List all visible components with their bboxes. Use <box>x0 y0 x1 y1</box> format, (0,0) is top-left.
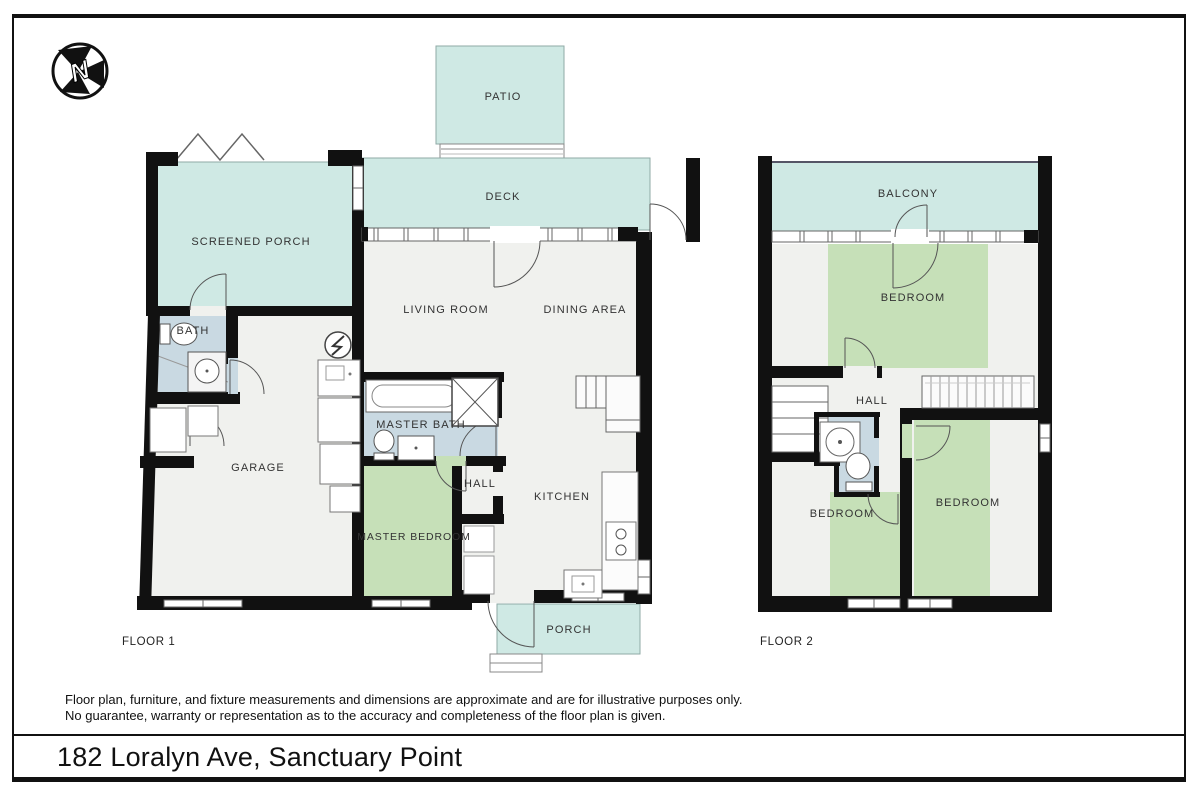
outer-frame-border <box>12 14 1186 782</box>
address-title: 182 Loralyn Ave, Sanctuary Point <box>57 742 462 773</box>
floor-plan-page: N PATIO DECK SCREENED PORCH LIVING ROOM … <box>0 0 1200 800</box>
address-divider <box>12 734 1186 736</box>
